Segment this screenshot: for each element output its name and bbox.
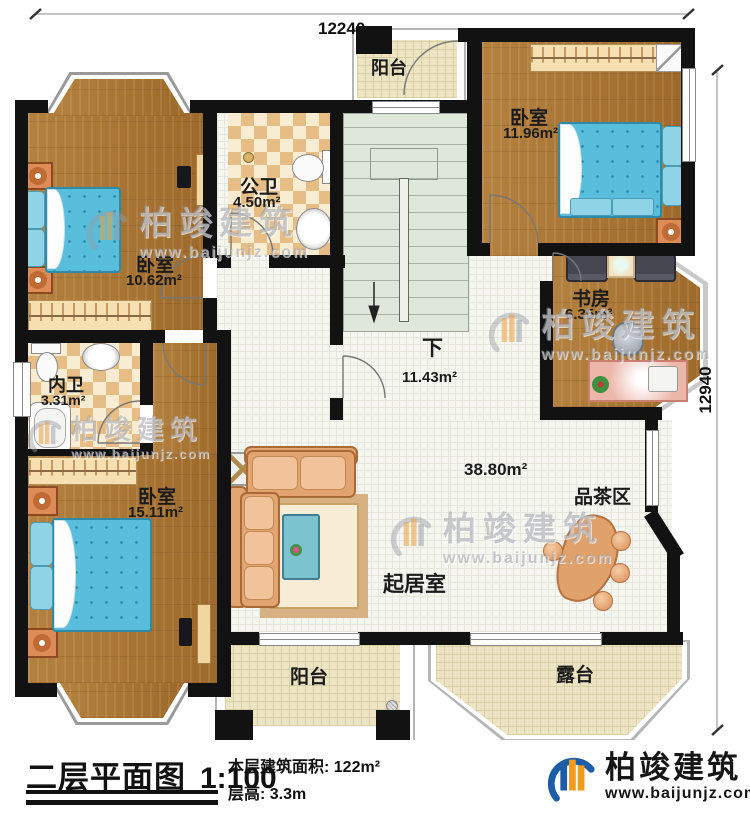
room-label-terrace: 露台 [556,660,594,687]
area-bedroom-tl: 10.62m² [126,272,182,289]
brand-logo-block: 柏竣建筑 www.baijunjz.com [543,748,750,806]
wall [188,683,231,697]
wall [482,243,490,256]
window [372,101,440,114]
bay-window-bottom-left-floor [60,683,184,718]
sofa-cushion [244,566,274,600]
plan-info: 本层建筑面积: 122m² 层高: 3.3m [228,754,380,808]
area-inner-bath: 3.31m² [41,392,85,408]
wall [330,398,343,420]
wardrobe [530,44,658,72]
floor-height-line: 层高: 3.3m [228,781,380,808]
dimension-right: 12940 [696,350,716,430]
sofa-cushion [300,456,346,490]
living-floor-east [450,420,672,632]
area-living-room: 38.80m² [464,460,527,480]
pillow [30,566,53,610]
wall [140,443,153,455]
floor-height-value: 3.3m [270,786,306,803]
wall [540,407,662,420]
wall [538,243,695,256]
wall [217,255,231,268]
stool [610,563,630,583]
sink [82,343,120,371]
nightstand [26,486,58,516]
footer: 二层平面图 1:100 本层建筑面积: 122m² 层高: 3.3m 柏竣建筑 … [0,740,750,817]
area-bedroom-bl: 15.11m² [128,504,183,521]
wardrobe [28,300,152,332]
sliding-door [470,633,602,646]
sofa-cushion [252,456,298,490]
sink [296,208,332,250]
corner-cabinet [656,44,683,72]
wall [330,100,343,270]
room-label-balcony-bottom: 阳台 [290,662,328,689]
nightstand [26,628,58,658]
wall [358,632,470,645]
wall [216,100,345,113]
wall [667,550,680,636]
floor-plan-canvas: 阳台 卧室 11.96m² 公卫 4.50m² 卧室 10.62m² 书房 6.… [0,0,750,817]
brand-name: 柏竣建筑 [605,751,750,785]
wall [269,255,345,268]
floor-area-label: 本层建筑面积: [228,759,334,776]
window [13,362,31,417]
wall [600,632,683,645]
stair-landing-box [370,148,438,180]
stair-rail [399,178,409,322]
wall [140,343,153,405]
tv [177,166,191,188]
wall [15,100,48,113]
area-bedroom-tr: 11.96m² [503,125,558,142]
wall [15,449,140,456]
wardrobe [28,457,137,485]
bed-bench [612,198,654,216]
wall [15,330,165,343]
tv-cabinet [197,604,211,664]
floor-height-label: 层高: [228,786,270,803]
room-label-living-room: 起居室 [383,568,446,598]
office-chair [612,322,644,356]
plant [592,376,609,393]
room-label-balcony-top: 阳台 [371,54,407,80]
stool [611,531,631,551]
wall [467,42,482,256]
floor-area-value: 122m² [334,759,380,776]
sofa-cushion [244,531,274,565]
sliding-door [259,633,360,646]
brand-website: www.baijunjz.com [605,785,750,803]
coffee-table-decor [290,544,302,556]
balcony-pillar [376,710,410,740]
pillow [30,522,53,566]
area-public-bath: 4.50m² [233,194,281,211]
area-stairs: 11.43m² [402,369,457,386]
bay-window-top-left-floor [52,79,186,116]
dimension-top: 12240 [318,19,365,39]
wall [217,330,231,685]
tv [179,618,192,646]
window [682,68,696,162]
balcony-pillar [215,710,253,740]
wall [458,28,695,42]
wall [540,281,553,407]
printer [648,366,678,392]
stool [543,541,563,561]
title-underline [26,790,218,794]
room-label-tea-area: 品茶区 [574,482,631,509]
bedroom-entry-nook-floor [153,343,217,455]
sofa-cushion [244,496,274,530]
room-label-stairs-down: 下 [422,332,443,362]
title-underline [26,800,218,805]
window [646,430,659,506]
area-study: 6.35m² [565,306,613,323]
stool [593,591,613,611]
brand-logo-icon [543,748,597,806]
wall [15,683,57,697]
wall-lamp [243,152,254,163]
floor-area-line: 本层建筑面积: 122m² [228,754,380,781]
toilet-bowl [292,154,324,182]
wall [203,100,217,258]
wall [330,270,343,345]
bed-bench [570,198,612,216]
bathtub-inner [34,408,66,448]
